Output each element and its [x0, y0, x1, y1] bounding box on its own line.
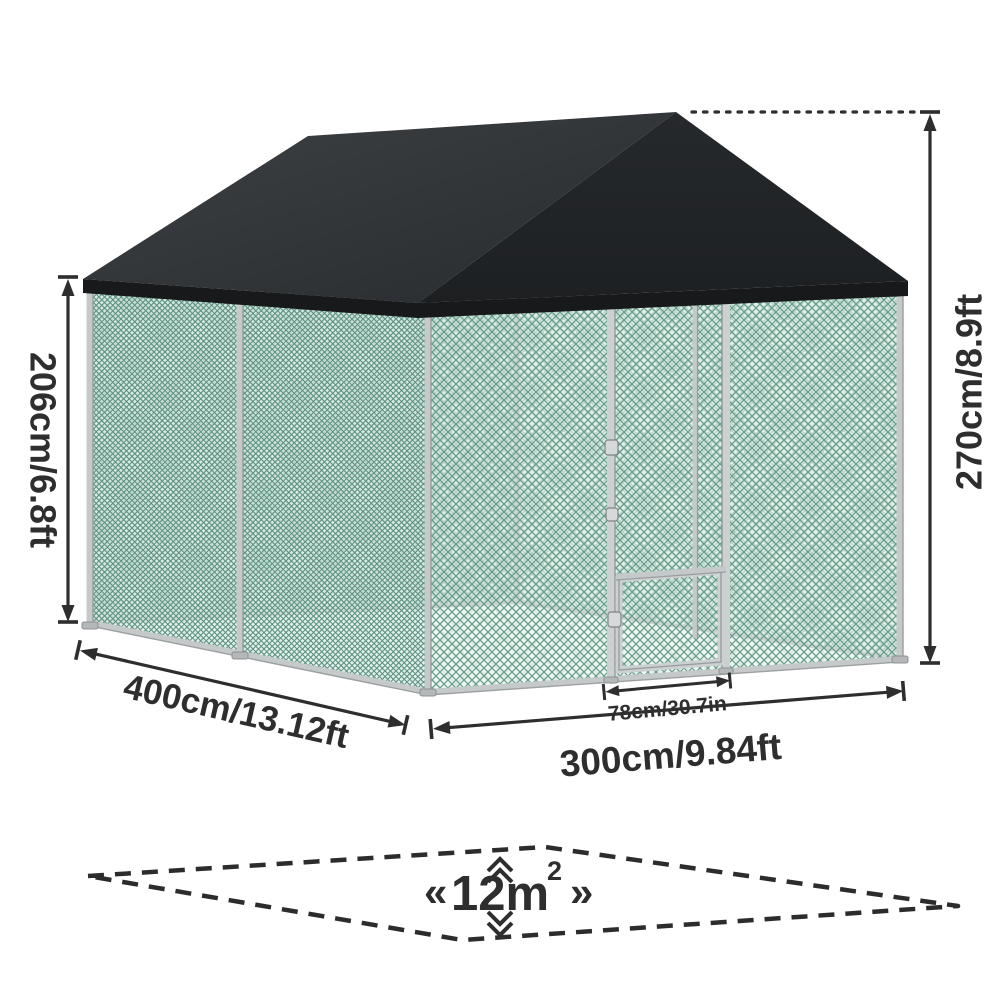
- area-value: 12m: [451, 867, 549, 921]
- product-dimension-diagram: 206cm/6.8ft 270cm/8.9ft 400cm/13.12ft: [0, 0, 1000, 1000]
- total-height-label: 270cm/8.9ft: [949, 294, 990, 490]
- floor-area-diagram: « 12m 2 »: [88, 847, 958, 940]
- area-close-mark: »: [570, 868, 593, 915]
- area-open-mark: «: [424, 868, 447, 915]
- front-wall-mesh: [428, 292, 900, 692]
- roof-cover: [83, 112, 908, 318]
- door-width-label: 78cm/30.7in: [607, 692, 728, 726]
- area-exponent: 2: [547, 856, 562, 886]
- enclosure-diagram-svg: 206cm/6.8ft 270cm/8.9ft 400cm/13.12ft: [0, 0, 1000, 1000]
- width-label: 300cm/9.84ft: [558, 726, 783, 785]
- dimension-arrow-total-height: [920, 110, 940, 665]
- enclosure-structure: [82, 112, 908, 696]
- wall-height-label: 206cm/6.8ft: [22, 352, 63, 548]
- depth-label: 400cm/13.12ft: [120, 667, 353, 756]
